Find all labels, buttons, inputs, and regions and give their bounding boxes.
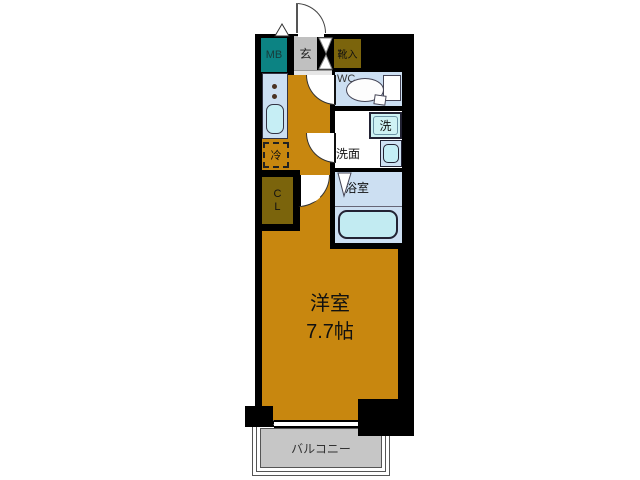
entrance-label: 玄 — [299, 45, 311, 62]
toilet-room: WC — [335, 72, 402, 106]
entrance-door-gap — [298, 33, 324, 37]
basin-bowl-icon — [383, 144, 399, 163]
main-room-label: 洋室 7.7帖 — [262, 290, 398, 346]
toilet-seat-icon — [373, 94, 386, 106]
closet: C L — [262, 177, 293, 224]
shoe-cabinet-label: 靴入 — [338, 46, 358, 61]
floor-plan: WC 洗 洗面 浴室 MB 玄 靴入 冷 — [0, 0, 640, 480]
bathroom-divider — [335, 206, 402, 207]
room-name: 洋室 — [262, 290, 398, 318]
shoe-cabinet: 靴入 — [334, 39, 361, 68]
room-size: 7.7帖 — [262, 318, 398, 346]
burner-icon — [272, 94, 277, 99]
closet-label: C L — [274, 188, 282, 213]
balcony-label: バルコニー — [291, 440, 351, 457]
meter-box-label: MB — [266, 49, 283, 61]
washing-machine-icon: 洗 — [369, 112, 402, 139]
balcony-window — [274, 420, 358, 428]
corner-pillar-left — [245, 406, 273, 427]
entrance-door-swing — [296, 3, 326, 33]
burner-icon — [272, 84, 277, 89]
kitchen-counter — [262, 73, 288, 139]
washer-label: 洗 — [379, 117, 391, 134]
refrigerator-space: 冷 — [263, 142, 289, 168]
refrigerator-label: 冷 — [271, 147, 282, 163]
bathtub-icon — [338, 210, 398, 239]
washroom: 洗 洗面 — [335, 111, 402, 168]
entrance-genkan: 玄 — [294, 36, 317, 71]
bathroom: 浴室 — [335, 172, 402, 243]
meter-box: MB — [261, 38, 287, 72]
washroom-label: 洗面 — [336, 145, 360, 162]
bathroom-label: 浴室 — [345, 179, 369, 196]
corner-pillar-right — [358, 399, 414, 436]
kitchen-sink-icon — [266, 104, 284, 134]
